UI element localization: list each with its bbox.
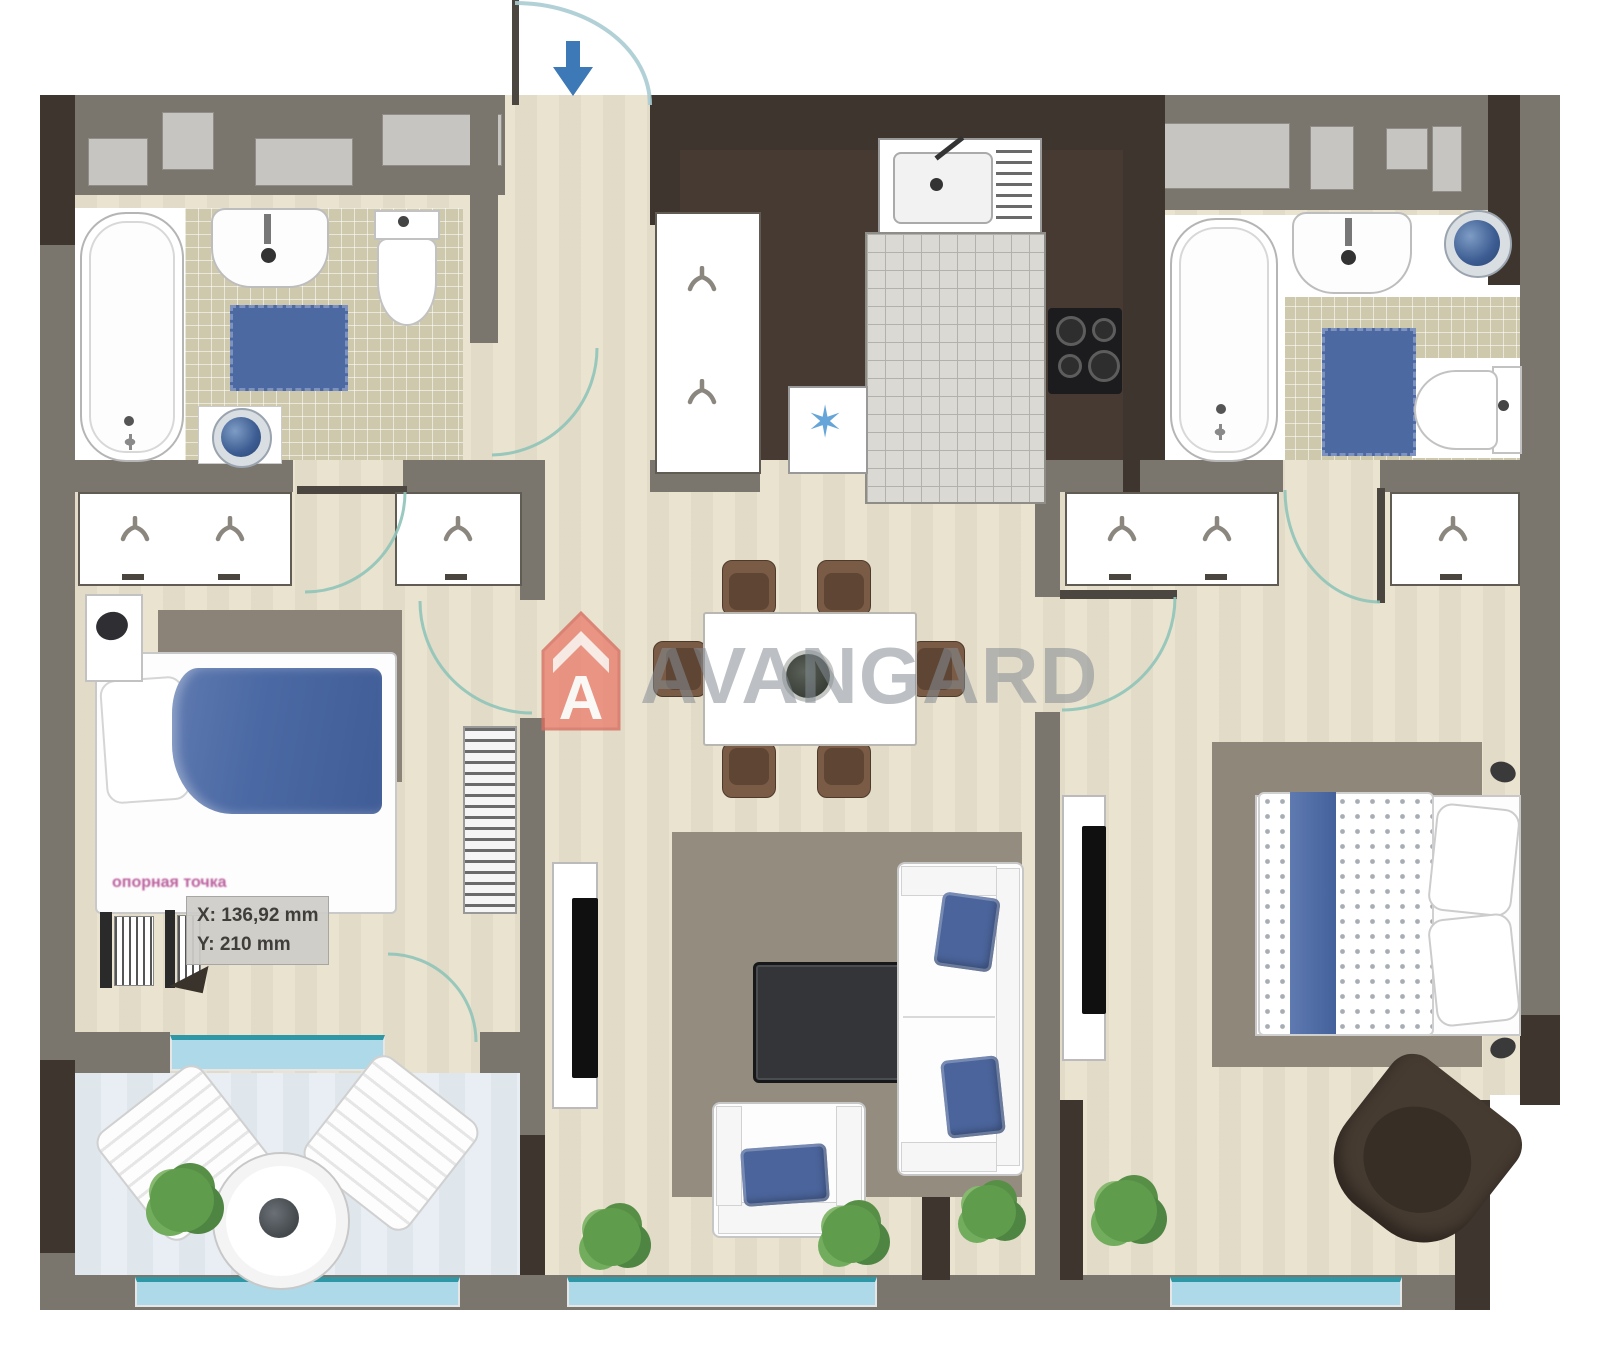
bathroomL-corridor-door-arc[interactable] (305, 492, 405, 592)
brand-logo-icon: A (535, 605, 627, 737)
bathroomL-hall-door-arc[interactable] (492, 348, 597, 455)
bedroomL-door-arc[interactable] (420, 601, 532, 713)
watermark-brand: AVANGARD (640, 630, 1098, 722)
bathroomR-door-arc[interactable] (1285, 490, 1380, 602)
logo-letter: A (559, 664, 604, 733)
entrance-door-arc[interactable] (515, 3, 650, 105)
floorplan-canvas: ✶ (0, 0, 1600, 1371)
balcony-door-arc[interactable] (388, 954, 476, 1042)
